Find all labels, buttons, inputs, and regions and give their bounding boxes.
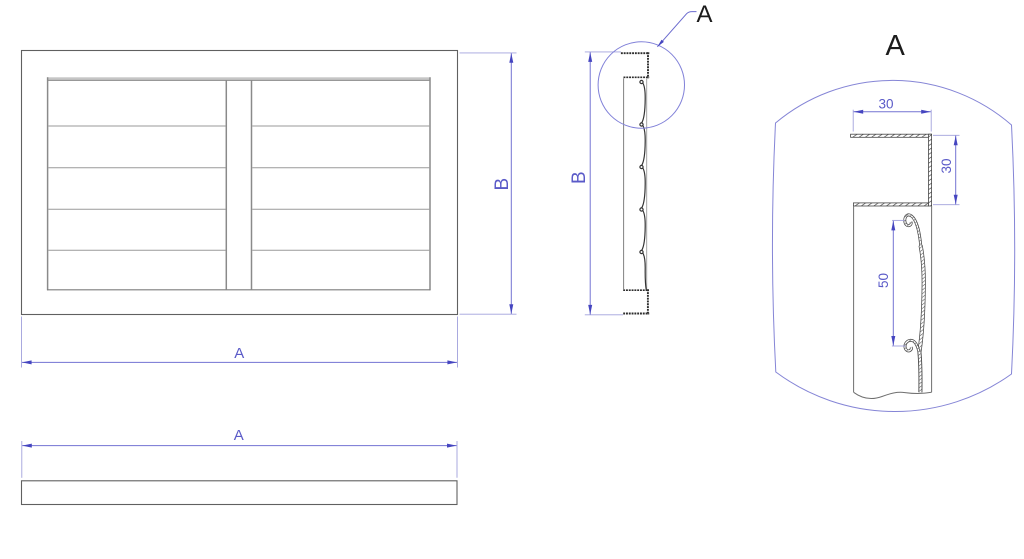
- svg-text:B: B: [492, 178, 513, 191]
- svg-text:A: A: [697, 1, 713, 28]
- svg-text:B: B: [569, 171, 590, 184]
- svg-text:A: A: [886, 30, 906, 62]
- svg-text:30: 30: [879, 97, 894, 112]
- svg-text:A: A: [234, 427, 244, 444]
- svg-text:A: A: [234, 345, 244, 362]
- svg-text:50: 50: [876, 273, 891, 288]
- svg-text:30: 30: [939, 158, 954, 173]
